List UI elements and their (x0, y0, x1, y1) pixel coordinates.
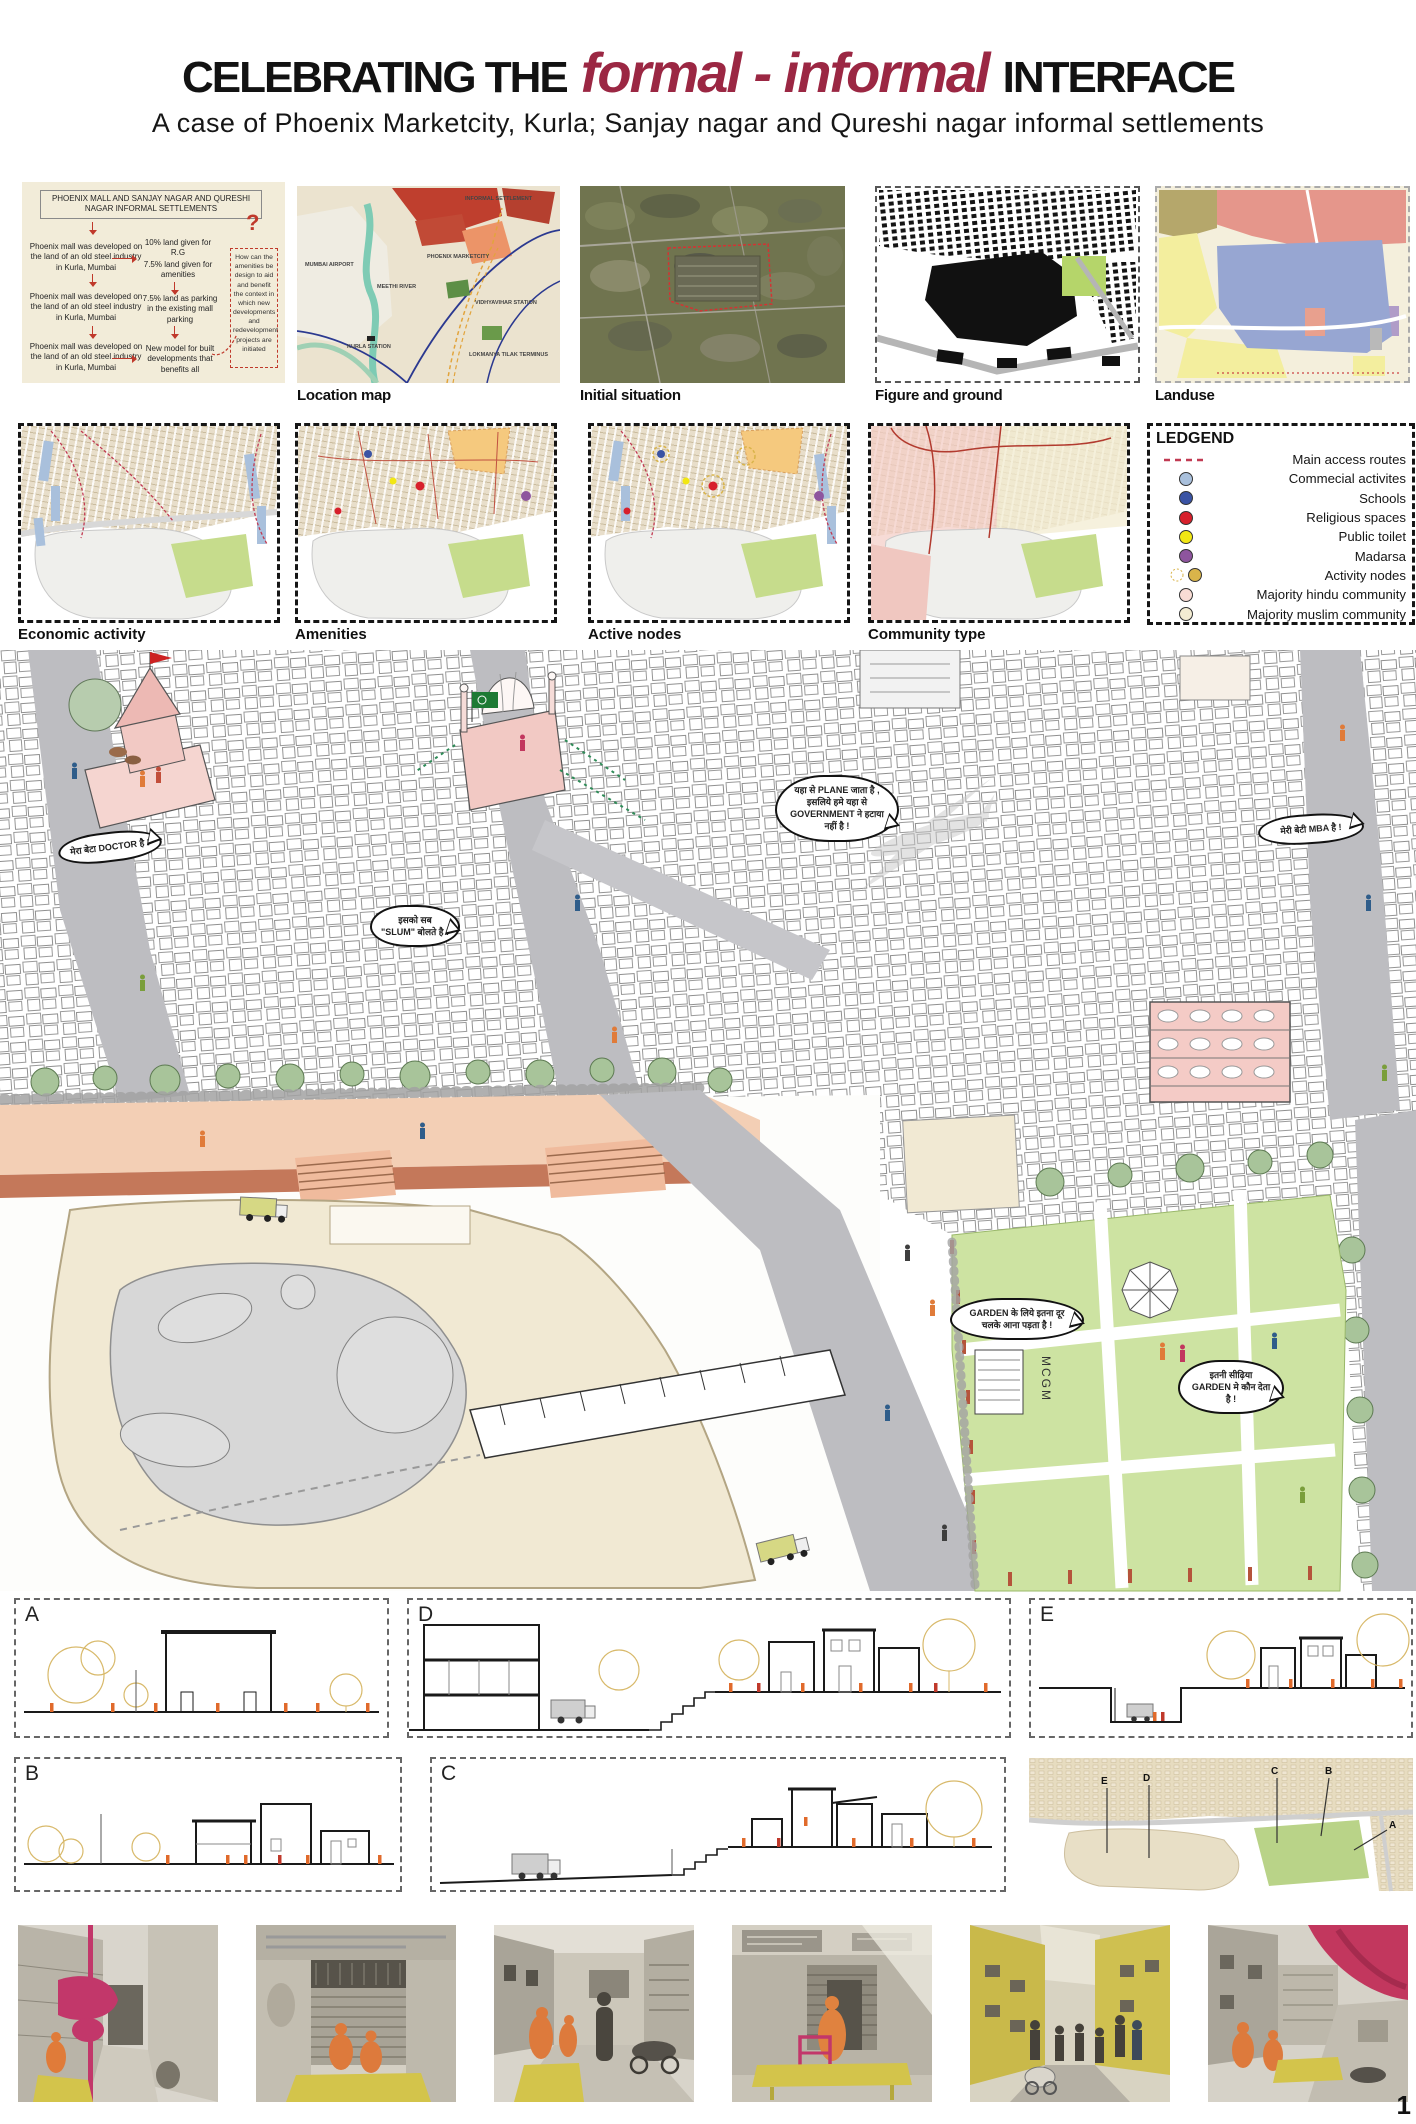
figure-ground-drawing (877, 188, 1138, 381)
presentation-board: CELEBRATING THE formal - informal INTERF… (0, 0, 1416, 2124)
legend-panel: LEDGEND Main access routes Commecial act… (1147, 423, 1415, 625)
truck-icon (551, 1700, 595, 1724)
flow-arrow (112, 258, 136, 259)
active-nodes-overlay (591, 426, 847, 620)
section-letter: E (1040, 1603, 1054, 1627)
section-drawing-b (16, 1759, 400, 1890)
legend-item: Public toilet (1154, 527, 1406, 546)
flow-node: Phoenix mall was developed on the land o… (28, 292, 144, 323)
legend-item: Majority muslim community (1154, 604, 1406, 623)
photo-informal-alley (18, 1925, 218, 2102)
legend-item: Main access routes (1154, 450, 1406, 469)
map-economic-activity (18, 423, 280, 623)
keyplan-marker: B (1325, 1766, 1332, 1777)
flow-node: 7.5% land as parking in the existing mal… (140, 294, 220, 325)
map-label-vidhyavihar: VIDHYAVIHAR STATION (475, 300, 537, 306)
landuse-map (1155, 186, 1410, 383)
economic-overlay (21, 426, 277, 620)
flow-arrow (92, 274, 93, 286)
flow-node: 10% land given for R.G (140, 238, 216, 259)
map-label-informal: INFORMAL SETTLEMENT (465, 196, 533, 202)
location-map: MUMBAI AIRPORT MEETHI RIVER INFORMAL SET… (297, 186, 560, 383)
circle-swatch (1154, 510, 1218, 526)
amenities-overlay (298, 426, 554, 620)
label-community-type: Community type (868, 626, 986, 643)
landuse-drawing (1157, 188, 1408, 381)
keyplan-marker: C (1271, 1766, 1278, 1777)
flow-node: 7.5% land given for amenities (140, 260, 216, 281)
flow-arrow (92, 326, 93, 338)
key-plan-drawing: E D C B A (1029, 1758, 1413, 1893)
section-drawing-e (1031, 1600, 1411, 1736)
flow-arrow (174, 326, 175, 338)
section-drawing-a (16, 1600, 387, 1736)
keyplan-marker: E (1101, 1776, 1108, 1787)
circle-swatch (1154, 587, 1218, 603)
section-panel-b: B (14, 1757, 402, 1892)
section-letter: A (25, 1603, 39, 1627)
caption-initial-situation: Initial situation (580, 387, 681, 404)
flow-node: New model for built developments that be… (140, 344, 220, 375)
speech-bubble-garden-far: GARDEN के लिये इतना दूर चलके आना पड़ता ह… (950, 1298, 1084, 1340)
section-panel-e: E (1029, 1598, 1413, 1738)
section-panel-c: C (430, 1757, 1006, 1892)
truck-icon (512, 1854, 560, 1880)
community-overlay (871, 426, 1127, 620)
illustration-drawing: MCGM (0, 650, 1416, 1595)
legend-item: Activity nodes (1154, 566, 1406, 585)
mcgm-label: MCGM (1039, 1356, 1053, 1402)
map-label-river: MEETHI RIVER (377, 284, 416, 290)
speech-bubble-garden-stairs: इतनी सीढ़िया GARDEN मे कौन देता है ! (1178, 1360, 1284, 1414)
section-letter: C (441, 1762, 456, 1786)
dashed-line-swatch (1154, 455, 1218, 465)
speech-bubble-plane: यहा से PLANE जाता है , इसलिये हमे यहा से… (775, 775, 899, 842)
legend-item: Schools (1154, 489, 1406, 508)
section-panel-a: A (14, 1598, 389, 1738)
caption-landuse: Landuse (1155, 387, 1215, 404)
flowchart-title: PHOENIX MALL AND SANJAY NAGAR AND QURESH… (40, 190, 262, 219)
cloud-building (1150, 1002, 1290, 1102)
circle-swatch (1154, 529, 1218, 545)
photo-shop-shutter (256, 1925, 456, 2102)
legend-item: Majority hindu community (1154, 585, 1406, 604)
section-key-plan: E D C B A (1029, 1758, 1413, 1893)
page-number: 1 (1397, 2090, 1411, 2121)
axonometric-illustration: MCGM (0, 650, 1416, 1595)
legend-item: Madarsa (1154, 546, 1406, 565)
caption-location-map: Location map (297, 387, 391, 404)
flow-arrow (112, 358, 136, 359)
map-label-airport: MUMBAI AIRPORT (305, 262, 354, 268)
section-letter: B (25, 1762, 39, 1786)
label-active-nodes: Active nodes (588, 626, 681, 643)
photo-yellow-street (970, 1925, 1170, 2102)
circle-swatch (1154, 471, 1218, 487)
map-active-nodes (588, 423, 850, 623)
circle-swatch (1154, 548, 1218, 564)
circle-swatch (1154, 606, 1218, 622)
map-label-phoenix: PHOENIX MARKETCITY (427, 254, 490, 260)
map-label-kurla: KURLA STATION (347, 344, 391, 350)
circle-swatch (1154, 490, 1218, 506)
intro-flowchart: PHOENIX MALL AND SANJAY NAGAR AND QURESH… (22, 182, 285, 383)
truck-icon (1127, 1704, 1153, 1722)
aerial-drawing (580, 186, 845, 383)
keyplan-marker: A (1389, 1820, 1396, 1831)
title-prefix: CELEBRATING THE (182, 53, 567, 103)
keyplan-marker: D (1143, 1773, 1150, 1784)
map-amenities (295, 423, 557, 623)
initial-situation-aerial (580, 186, 845, 383)
photo-canopy-street (1208, 1925, 1408, 2102)
caption-figure-ground: Figure and ground (875, 387, 1002, 404)
legend-title: LEDGEND (1156, 430, 1406, 448)
legend-item: Religious spaces (1154, 508, 1406, 527)
section-drawing-c (432, 1759, 1004, 1890)
map-community-type (868, 423, 1130, 623)
title-accent: formal - informal (581, 40, 989, 105)
legend-item: Commecial activites (1154, 469, 1406, 488)
section-letter: D (418, 1603, 433, 1627)
photo-street-figures (494, 1925, 694, 2102)
question-mark: ? (246, 210, 259, 236)
location-map-drawing: MUMBAI AIRPORT MEETHI RIVER INFORMAL SET… (297, 186, 560, 383)
flow-arrow (174, 282, 175, 294)
label-amenities: Amenities (295, 626, 367, 643)
figure-ground-map (875, 186, 1140, 383)
circle-with-ring-swatch (1154, 567, 1218, 583)
section-drawing-d (409, 1600, 1009, 1736)
dashed-link (210, 332, 240, 360)
label-economic-activity: Economic activity (18, 626, 146, 643)
speech-bubble-slum: इसको सब "SLUM" बोलते है ! (370, 905, 460, 947)
map-label-lokmanya: LOKMANYA TILAK TERMINUS (469, 352, 548, 358)
subtitle: A case of Phoenix Marketcity, Kurla; San… (0, 108, 1416, 139)
garden-umbrella (1122, 1262, 1178, 1318)
title-suffix: INTERFACE (1003, 53, 1234, 103)
section-panel-d: D (407, 1598, 1011, 1738)
photo-shop-entrance (732, 1925, 932, 2102)
flow-arrow (92, 222, 93, 234)
page-title: CELEBRATING THE formal - informal INTERF… (0, 40, 1416, 105)
